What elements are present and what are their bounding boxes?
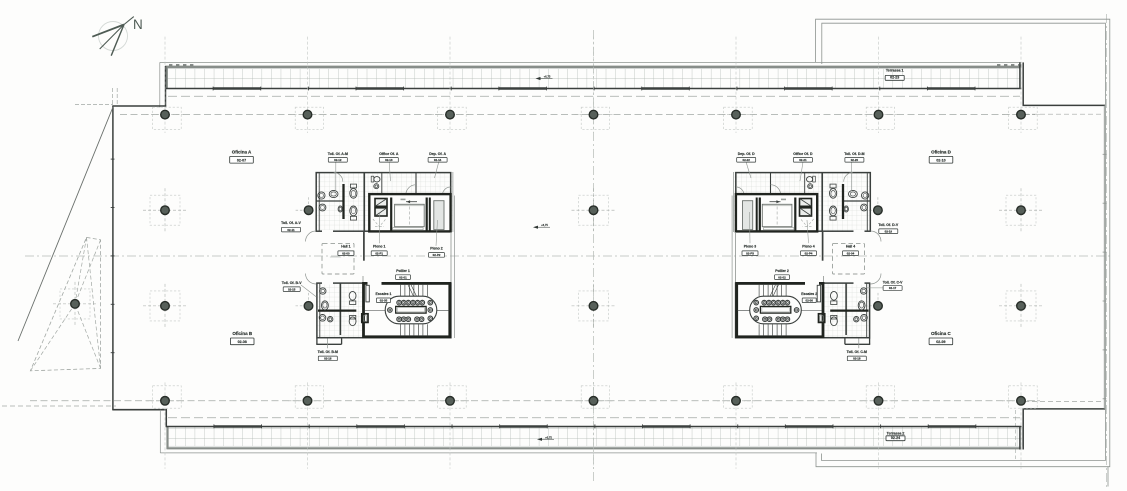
svg-text:02-10: 02-10	[936, 159, 945, 163]
svg-text:Dep. Of. A: Dep. Of. A	[429, 152, 446, 156]
svg-text:02-P2: 02-P2	[433, 253, 441, 257]
svg-text:Toil. Of. D-M: Toil. Of. D-M	[844, 152, 864, 156]
svg-text:Toil. Of. A-M: Toil. Of. A-M	[328, 152, 348, 156]
svg-text:Toil. Of. A-V: Toil. Of. A-V	[281, 221, 301, 225]
svg-text:02-18: 02-18	[853, 357, 861, 361]
svg-text:02-P4: 02-P4	[805, 251, 813, 255]
svg-text:Toil. Of. B-V: Toil. Of. B-V	[282, 281, 302, 285]
svg-text:Hall 1: Hall 1	[341, 245, 350, 249]
svg-text:02-04: 02-04	[847, 251, 855, 255]
svg-text:Pleno 4: Pleno 4	[802, 245, 815, 249]
svg-text:02-24: 02-24	[891, 436, 900, 440]
svg-text:02-P1: 02-P1	[375, 251, 383, 255]
svg-text:Pollier 2: Pollier 2	[775, 269, 789, 273]
svg-text:02-05: 02-05	[380, 299, 388, 303]
svg-text:Terrassa 2: Terrassa 2	[887, 431, 905, 435]
svg-text:02-22: 02-22	[742, 158, 750, 162]
svg-text:02-13: 02-13	[385, 158, 393, 162]
svg-text:02-17: 02-17	[889, 286, 897, 290]
svg-text:Oficina C: Oficina C	[931, 331, 952, 336]
svg-text:+6,75: +6,75	[541, 223, 548, 227]
svg-text:Terrassa 1: Terrassa 1	[886, 69, 904, 73]
svg-text:02-00: 02-00	[342, 251, 350, 255]
svg-text:Pleno 3: Pleno 3	[744, 245, 757, 249]
svg-text:02-P3: 02-P3	[746, 251, 754, 255]
svg-text:02-02: 02-02	[778, 275, 786, 279]
svg-text:02-14: 02-14	[434, 158, 442, 162]
svg-text:02-23: 02-23	[890, 76, 899, 80]
svg-text:Oficina D: Oficina D	[931, 150, 952, 155]
svg-text:Toil. Of. D-V: Toil. Of. D-V	[878, 223, 898, 227]
svg-text:Toil. Of. C-M: Toil. Of. C-M	[847, 350, 867, 354]
svg-text:Pleno 1: Pleno 1	[373, 245, 386, 249]
svg-text:Oficina A: Oficina A	[232, 150, 252, 155]
svg-text:02-07: 02-07	[237, 159, 246, 163]
svg-text:Oficina B: Oficina B	[232, 331, 253, 336]
svg-text:Escales 2: Escales 2	[801, 292, 817, 296]
svg-text:02-08: 02-08	[238, 340, 247, 344]
svg-text:N: N	[133, 17, 143, 32]
svg-text:02-12: 02-12	[334, 158, 342, 162]
svg-text:02-21: 02-21	[799, 158, 807, 162]
svg-text:02-06: 02-06	[805, 299, 813, 303]
svg-text:02-09: 02-09	[936, 340, 945, 344]
svg-text:02-11: 02-11	[287, 228, 295, 232]
svg-text:Toil. Of. B-M: Toil. Of. B-M	[318, 350, 338, 354]
svg-text:Pleno 2: Pleno 2	[430, 246, 443, 250]
svg-text:Office Of. D: Office Of. D	[793, 152, 813, 156]
svg-text:+6,75: +6,75	[545, 435, 552, 439]
svg-text:02-20: 02-20	[851, 158, 859, 162]
svg-text:02-15: 02-15	[288, 287, 296, 291]
svg-text:Dep. Of. D: Dep. Of. D	[738, 152, 755, 156]
svg-text:Toil. Of. C-V: Toil. Of. C-V	[883, 280, 903, 284]
svg-text:02-19: 02-19	[885, 229, 893, 233]
svg-text:Hall 4: Hall 4	[846, 245, 855, 249]
svg-text:Escales 1: Escales 1	[376, 292, 392, 296]
svg-text:02-01: 02-01	[399, 275, 407, 279]
svg-text:Pollier 1: Pollier 1	[396, 269, 410, 273]
svg-text:Office Of. A: Office Of. A	[379, 152, 399, 156]
svg-text:02-16: 02-16	[324, 357, 332, 361]
svg-text:+6,75: +6,75	[544, 75, 551, 79]
